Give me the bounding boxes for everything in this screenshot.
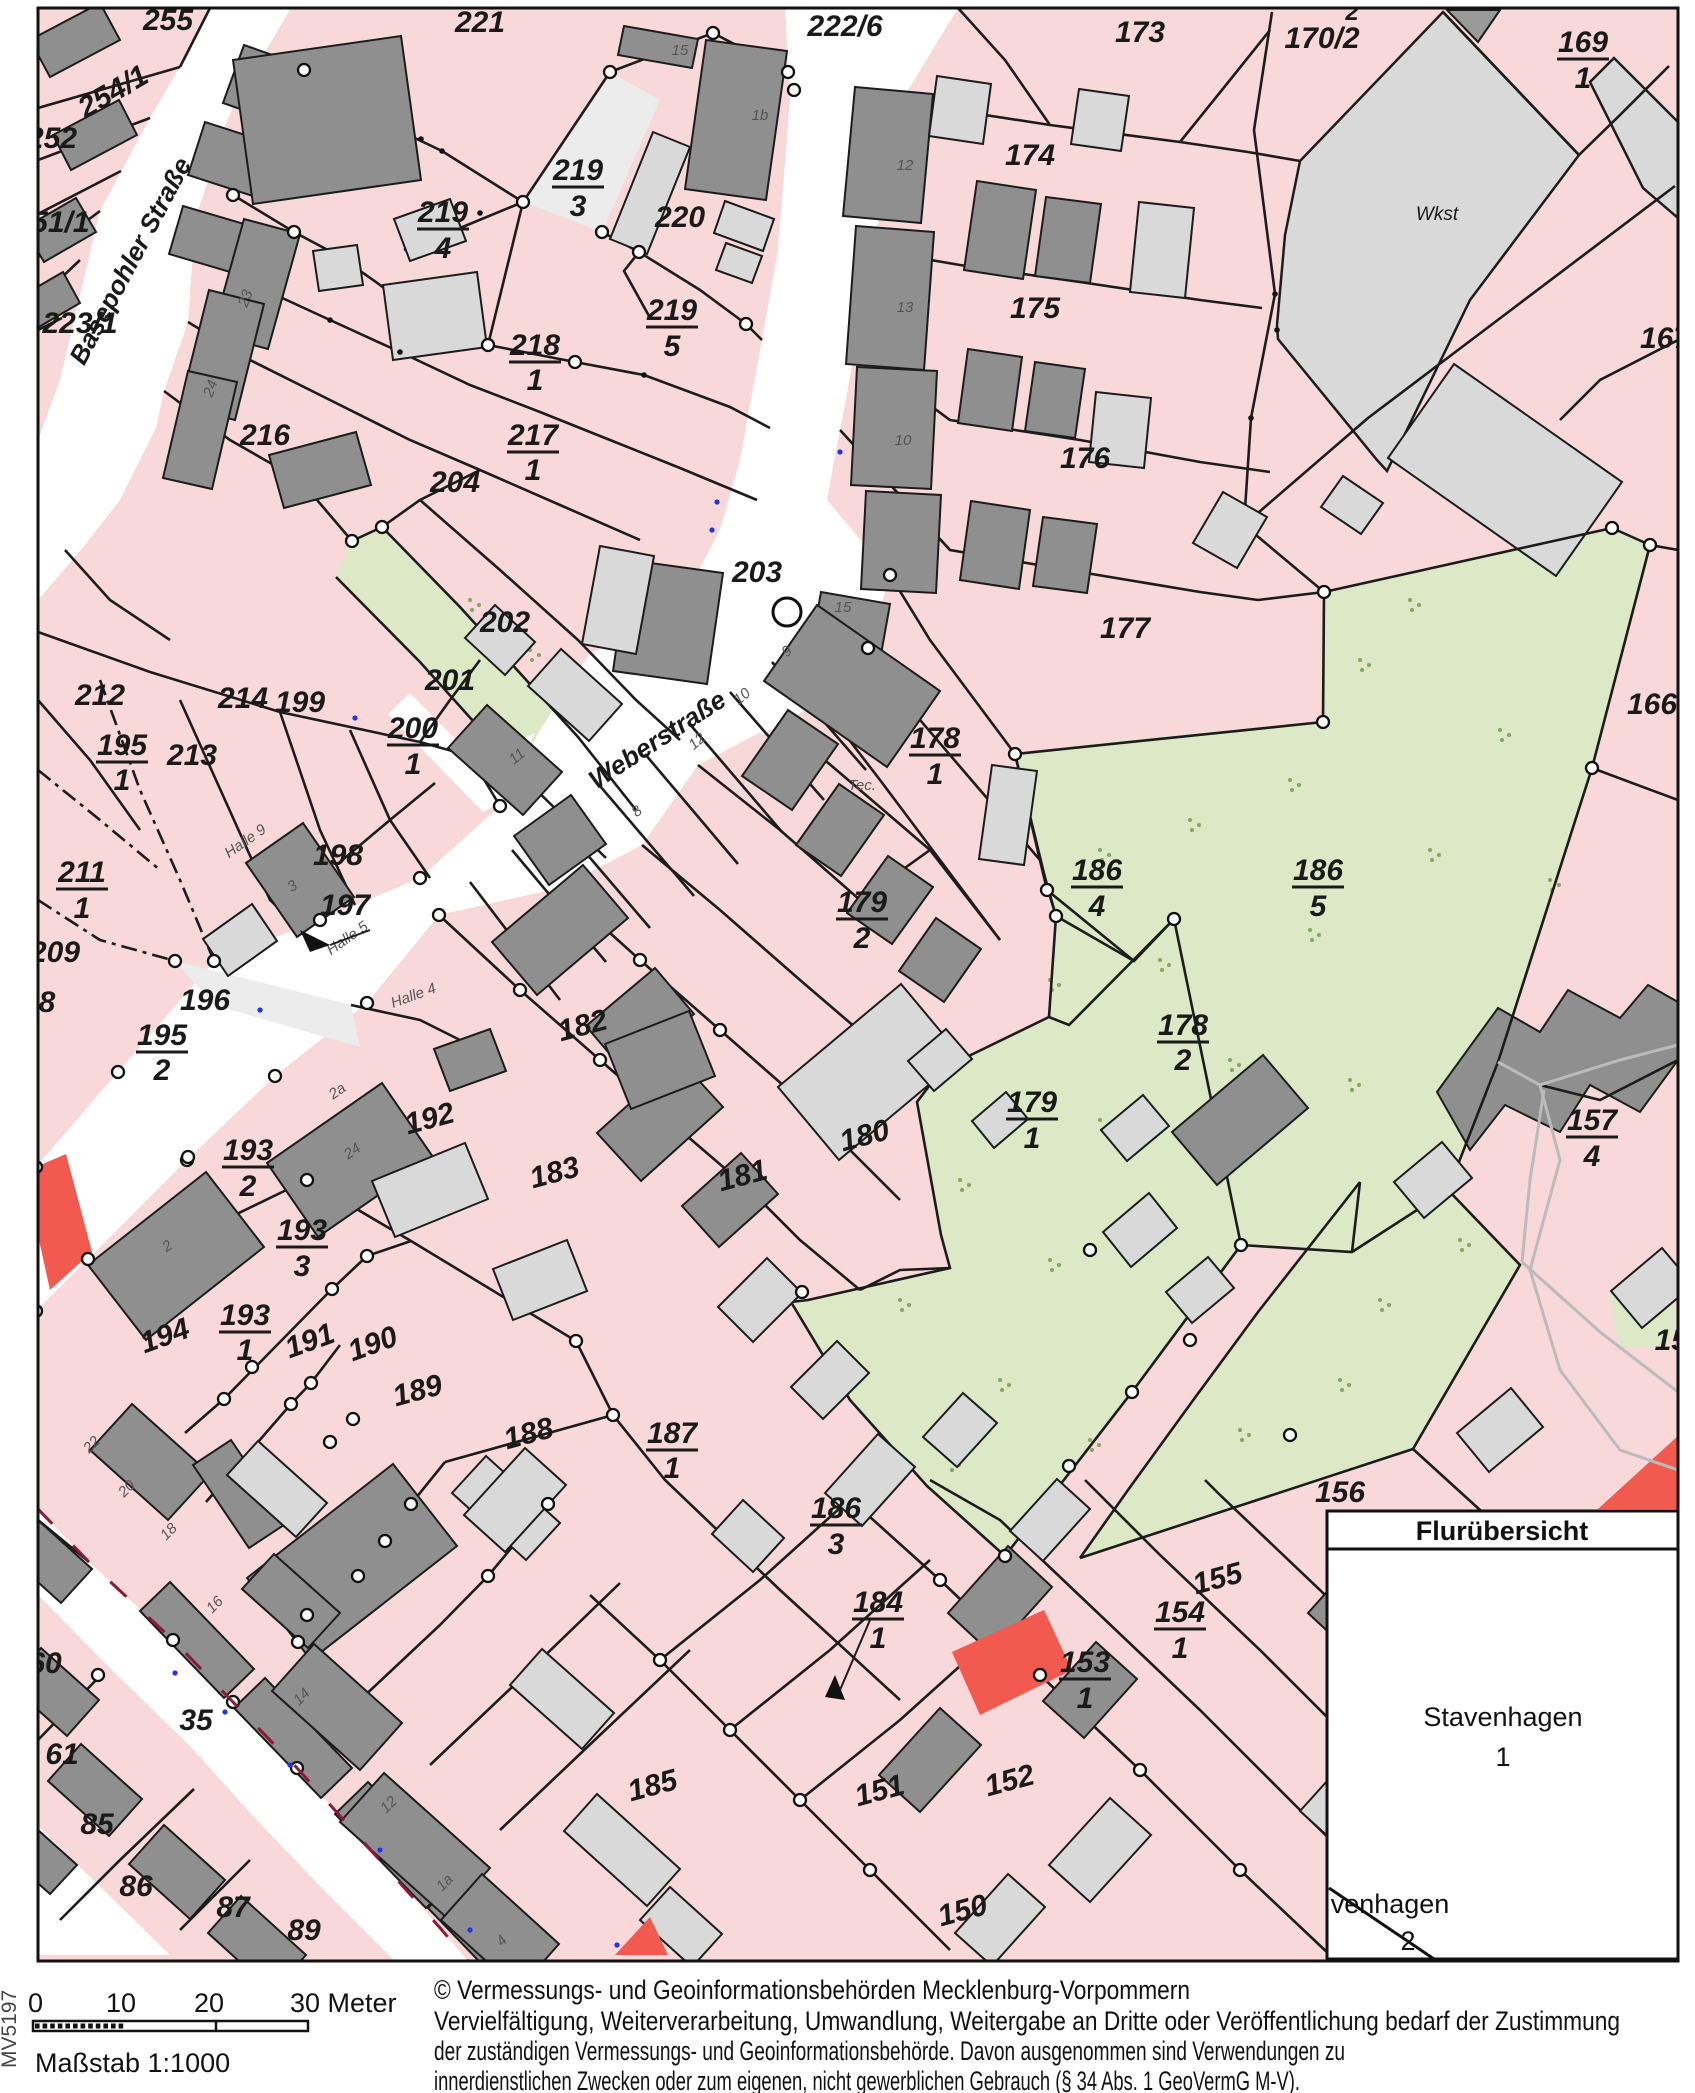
svg-text:innerdienstlichen Zwecken oder: innerdienstlichen Zwecken oder zum eigen… bbox=[434, 2066, 1300, 2093]
svg-text:1: 1 bbox=[237, 1334, 254, 1367]
svg-text:10: 10 bbox=[106, 1988, 136, 2018]
svg-text:venhagen: venhagen bbox=[1331, 1889, 1450, 1919]
svg-text:204: 204 bbox=[429, 466, 480, 499]
svg-text:2: 2 bbox=[853, 922, 871, 955]
svg-text:178: 178 bbox=[910, 722, 960, 755]
svg-text:186: 186 bbox=[1072, 854, 1122, 887]
svg-text:89: 89 bbox=[287, 1914, 321, 1947]
svg-text:178: 178 bbox=[1158, 1009, 1208, 1042]
svg-text:2: 2 bbox=[1174, 1044, 1192, 1077]
svg-text:Tec.: Tec. bbox=[848, 777, 876, 794]
svg-text:201: 201 bbox=[424, 664, 475, 697]
svg-text:1b: 1b bbox=[752, 107, 769, 124]
svg-text:4: 4 bbox=[1088, 890, 1106, 923]
svg-text:193: 193 bbox=[220, 1299, 270, 1332]
svg-text:197: 197 bbox=[320, 889, 371, 922]
svg-text:184: 184 bbox=[853, 1586, 903, 1619]
svg-text:186: 186 bbox=[811, 1492, 861, 1525]
svg-text:MV5197: MV5197 bbox=[0, 1990, 21, 2068]
svg-text:1: 1 bbox=[525, 454, 542, 487]
svg-text:198: 198 bbox=[313, 839, 363, 872]
svg-text:4: 4 bbox=[434, 232, 452, 265]
svg-text:166: 166 bbox=[1627, 688, 1677, 721]
svg-text:170/2: 170/2 bbox=[1284, 22, 1359, 55]
svg-text:217: 217 bbox=[507, 419, 559, 452]
svg-text:222/6: 222/6 bbox=[806, 10, 882, 43]
svg-text:1: 1 bbox=[1495, 1742, 1510, 1772]
svg-text:12: 12 bbox=[897, 157, 914, 174]
svg-text:1: 1 bbox=[1575, 62, 1592, 95]
svg-text:Maßstab 1:1000: Maßstab 1:1000 bbox=[35, 2048, 230, 2078]
svg-text:213: 213 bbox=[166, 739, 217, 772]
svg-text:219: 219 bbox=[417, 196, 468, 229]
svg-text:3: 3 bbox=[828, 1528, 845, 1561]
svg-text:1: 1 bbox=[114, 764, 131, 797]
svg-text:176: 176 bbox=[1060, 442, 1110, 475]
svg-text:223/1: 223/1 bbox=[41, 307, 117, 340]
svg-text:10: 10 bbox=[895, 432, 912, 449]
svg-text:3: 3 bbox=[294, 1250, 311, 1283]
svg-text:20: 20 bbox=[194, 1988, 224, 2018]
svg-text:195: 195 bbox=[137, 1019, 188, 1052]
svg-text:2: 2 bbox=[1400, 1926, 1415, 1956]
svg-text:218: 218 bbox=[509, 329, 560, 362]
svg-text:1: 1 bbox=[1024, 1122, 1041, 1155]
svg-text:61: 61 bbox=[45, 1738, 78, 1771]
svg-text:203: 203 bbox=[731, 556, 782, 589]
svg-text:4: 4 bbox=[1583, 1140, 1601, 1173]
svg-text:1: 1 bbox=[1172, 1632, 1189, 1665]
svg-text:177: 177 bbox=[1100, 612, 1151, 645]
svg-text:85: 85 bbox=[80, 1808, 115, 1841]
svg-text:219: 219 bbox=[646, 294, 697, 327]
svg-text:193: 193 bbox=[277, 1214, 327, 1247]
svg-text:200: 200 bbox=[387, 712, 438, 745]
svg-text:87: 87 bbox=[216, 1891, 251, 1924]
svg-text:195: 195 bbox=[97, 729, 148, 762]
svg-text:199: 199 bbox=[275, 686, 325, 719]
svg-text:Stavenhagen: Stavenhagen bbox=[1423, 1702, 1582, 1732]
svg-text:2: 2 bbox=[153, 1054, 171, 1087]
svg-text:220: 220 bbox=[654, 201, 705, 234]
svg-text:216: 216 bbox=[239, 419, 290, 452]
svg-text:211: 211 bbox=[57, 856, 106, 889]
svg-text:1: 1 bbox=[664, 1452, 681, 1485]
svg-text:221: 221 bbox=[454, 6, 505, 39]
svg-text:15: 15 bbox=[672, 42, 689, 59]
svg-text:Vervielfältigung, Weiterverarb: Vervielfältigung, Weiterverarbeitung, Um… bbox=[434, 2006, 1620, 2036]
svg-text:2: 2 bbox=[239, 1170, 257, 1203]
svg-text:186: 186 bbox=[1293, 854, 1343, 887]
svg-text:157: 157 bbox=[1567, 1104, 1618, 1137]
svg-text:1: 1 bbox=[870, 1622, 887, 1655]
svg-text:1: 1 bbox=[1077, 1682, 1094, 1715]
svg-text:179: 179 bbox=[1007, 1086, 1057, 1119]
svg-text:1: 1 bbox=[405, 748, 422, 781]
svg-text:15: 15 bbox=[835, 599, 852, 616]
svg-text:153: 153 bbox=[1060, 1646, 1110, 1679]
svg-text:187: 187 bbox=[647, 1417, 698, 1450]
svg-text:219: 219 bbox=[552, 154, 603, 187]
svg-text:3: 3 bbox=[570, 190, 587, 223]
svg-text:202: 202 bbox=[479, 606, 530, 639]
svg-text:5: 5 bbox=[664, 330, 682, 363]
svg-text:193: 193 bbox=[223, 1134, 273, 1167]
svg-text:Flurübersicht: Flurübersicht bbox=[1416, 1516, 1589, 1546]
svg-text:196: 196 bbox=[180, 984, 230, 1017]
svg-text:1: 1 bbox=[527, 364, 544, 397]
svg-text:der zuständigen Vermessungs- u: der zuständigen Vermessungs- und Geoinfo… bbox=[434, 2036, 1345, 2066]
svg-text:173: 173 bbox=[1115, 16, 1165, 49]
svg-text:© Vermessungs- und Geoinformat: © Vermessungs- und Geoinformationsbehörd… bbox=[434, 1975, 1190, 2005]
svg-text:86: 86 bbox=[119, 1870, 153, 1903]
svg-text:179: 179 bbox=[837, 886, 887, 919]
svg-text:174: 174 bbox=[1005, 139, 1055, 172]
svg-text:156: 156 bbox=[1315, 1476, 1365, 1509]
svg-text:35: 35 bbox=[179, 1704, 214, 1737]
svg-text:30 Meter: 30 Meter bbox=[290, 1988, 397, 2018]
svg-text:1: 1 bbox=[927, 758, 944, 791]
svg-text:169: 169 bbox=[1558, 26, 1608, 59]
svg-text:0: 0 bbox=[28, 1988, 43, 2018]
svg-text:13: 13 bbox=[897, 299, 914, 316]
svg-text:212: 212 bbox=[74, 679, 125, 712]
svg-text:1: 1 bbox=[74, 892, 91, 925]
svg-text:175: 175 bbox=[1010, 292, 1061, 325]
svg-text:5: 5 bbox=[1310, 890, 1328, 923]
svg-text:Wkst: Wkst bbox=[1416, 204, 1459, 225]
svg-text:214: 214 bbox=[217, 682, 268, 715]
